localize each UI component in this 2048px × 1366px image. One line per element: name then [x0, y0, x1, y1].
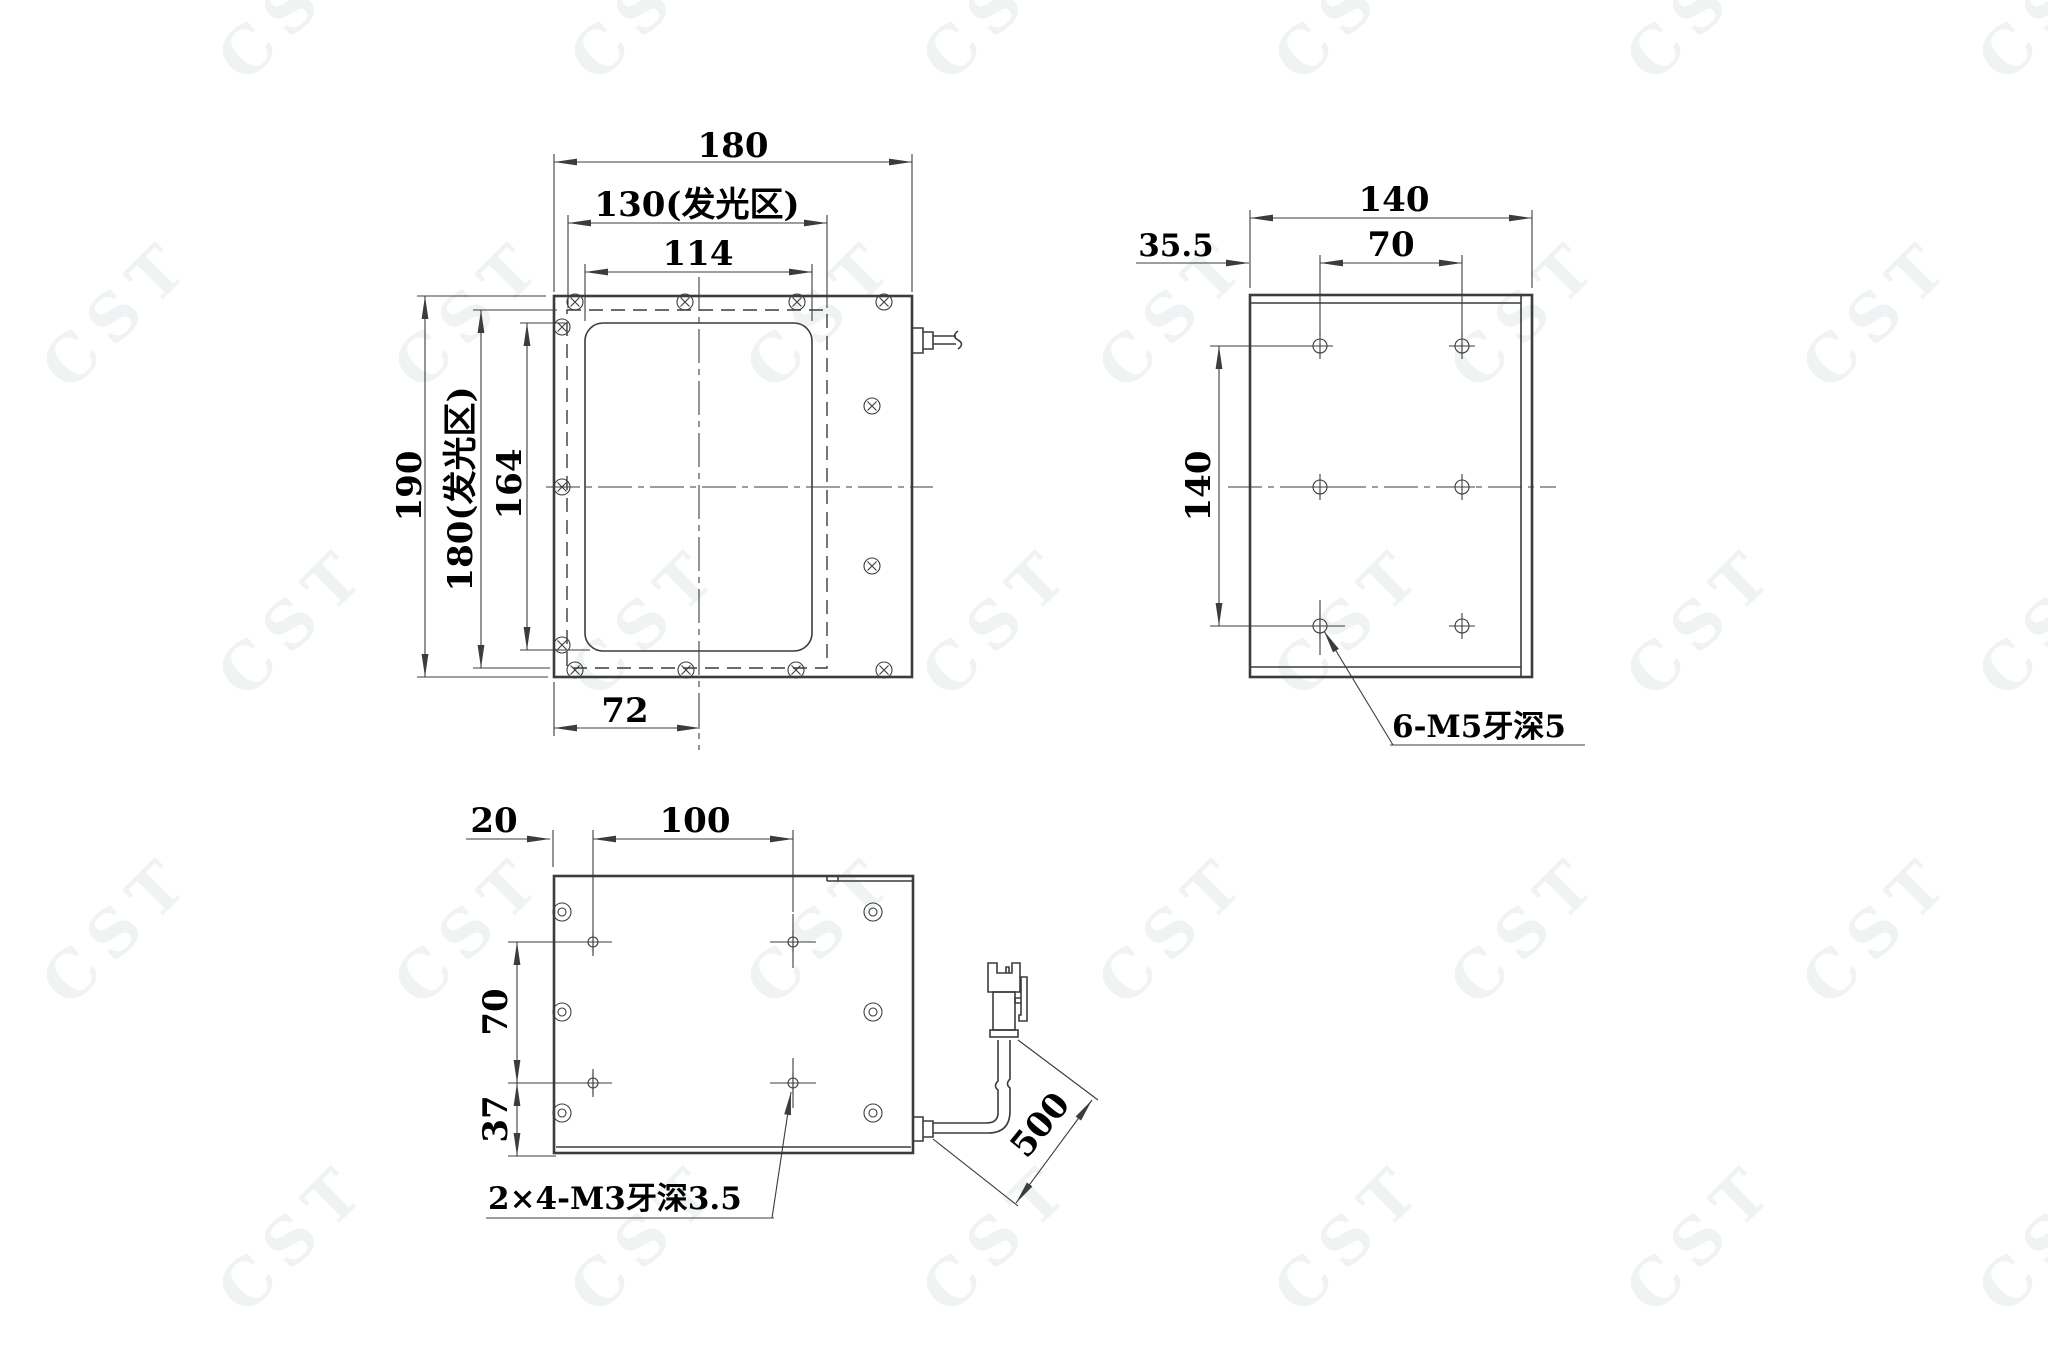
watermark-text: CST — [1963, 1147, 2048, 1328]
dim-side-depth: 140 — [1359, 180, 1430, 220]
screw-icon — [788, 662, 804, 678]
watermark-text: CST — [555, 0, 736, 96]
screw-icon — [864, 1104, 882, 1122]
screw-icon — [553, 903, 571, 921]
dim-back-edge-to-hole: 20 — [470, 801, 517, 841]
engineering-drawing-sheet: CSTCSTCSTCSTCSTCSTCSTCSTCSTCSTCSTCSTCSTC… — [0, 0, 2048, 1366]
watermark-text: CST — [907, 531, 1088, 712]
plug-head — [988, 963, 1020, 992]
screw-icon — [864, 398, 880, 414]
screw-icon — [554, 637, 570, 653]
back-cable-gland — [913, 1117, 933, 1141]
dim-front-width-total: 180 — [698, 126, 769, 166]
watermark-text: CST — [555, 1147, 736, 1328]
watermark-text: CST — [1259, 0, 1440, 96]
watermark-text: CST — [907, 0, 1088, 96]
watermark-text: CST — [379, 223, 560, 404]
dim-side-first-hole-offset: 35.5 — [1138, 228, 1214, 264]
note-side-thread: 6-M5牙深5 — [1392, 709, 1566, 745]
leader-line — [772, 1092, 791, 1218]
drawing-canvas: CSTCSTCSTCSTCSTCSTCSTCSTCSTCSTCSTCSTCSTC… — [0, 0, 2048, 1366]
screw-icon — [864, 558, 880, 574]
watermark-text: CST — [1611, 1147, 1792, 1328]
cable — [933, 1040, 1010, 1133]
dim-back-hole-pitch-vertical: 70 — [476, 988, 516, 1035]
cable-plug — [988, 963, 1027, 1037]
watermark-text: CST — [907, 1147, 1088, 1328]
note-back-thread: 2×4-M3牙深3.5 — [488, 1181, 742, 1217]
threaded-hole-icon — [1307, 333, 1333, 359]
front-view: 180 130(发光区) 114 190 180(发光区) 164 72 — [390, 126, 962, 750]
plug-body — [993, 992, 1015, 1030]
watermark-text: CST — [379, 839, 560, 1020]
dim-cable-length: 500 — [1003, 1085, 1079, 1165]
watermark-text: CST — [731, 223, 912, 404]
dim-front-center-offset: 72 — [601, 691, 648, 731]
dim-side-hole-pitch-vertical: 140 — [1179, 451, 1219, 522]
screw-icon — [678, 662, 694, 678]
watermark-text: CST — [203, 1147, 384, 1328]
watermark-text: CST — [1787, 223, 1968, 404]
watermark-text: CST — [1963, 0, 2048, 96]
plug-flange — [990, 1030, 1018, 1037]
dim-front-width-window: 114 — [663, 234, 734, 274]
watermark-text: CST — [203, 531, 384, 712]
back-extension-lines — [508, 830, 793, 1156]
watermark-text: CST — [27, 839, 208, 1020]
dim-side-hole-pitch-horizontal: 70 — [1367, 225, 1414, 265]
watermark-text: CST — [1611, 531, 1792, 712]
watermark-text: CST — [1083, 839, 1264, 1020]
watermark-text: CST — [1787, 839, 1968, 1020]
plug-latch — [1015, 977, 1027, 1021]
watermark-text: CST — [1963, 531, 2048, 712]
screw-icon — [876, 662, 892, 678]
dim-back-hole-to-bottom: 37 — [476, 1095, 516, 1142]
dim-front-height-window: 164 — [490, 449, 530, 520]
dim-front-height-total: 190 — [390, 451, 430, 522]
screw-icon — [864, 1003, 882, 1021]
watermark-text: CST — [555, 531, 736, 712]
dim-front-height-light-area: 180(发光区) — [441, 386, 481, 591]
screw-icon — [553, 1104, 571, 1122]
watermark-text: CST — [1435, 839, 1616, 1020]
dim-back-hole-pitch-horizontal: 100 — [660, 801, 731, 841]
front-cable-gland — [912, 328, 962, 353]
watermark-text: CST — [27, 223, 208, 404]
dim-front-width-light-area: 130(发光区) — [594, 185, 799, 225]
plug-pin — [1006, 967, 1009, 973]
watermark-text: CST — [1259, 531, 1440, 712]
watermark-text: CST — [203, 0, 384, 96]
threaded-hole-icon — [1449, 613, 1475, 639]
watermark-text: CST — [1259, 1147, 1440, 1328]
watermark-text: CST — [1611, 0, 1792, 96]
screw-icon — [553, 1003, 571, 1021]
watermark-text: CST — [731, 839, 912, 1020]
